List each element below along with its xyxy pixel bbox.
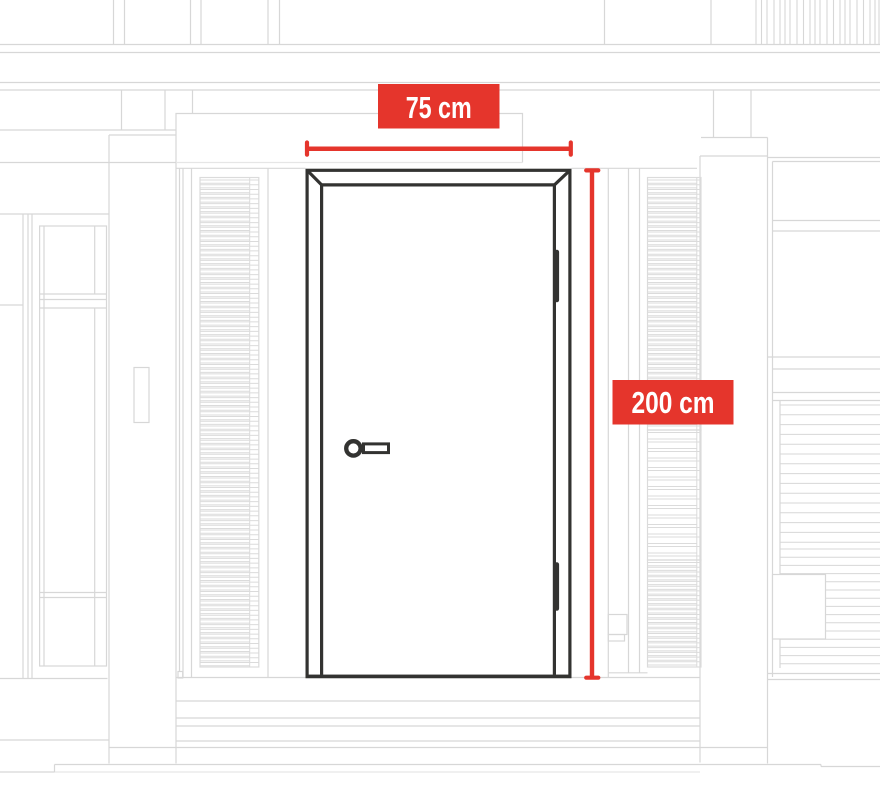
svg-text:200 cm: 200 cm: [632, 386, 715, 420]
svg-text:75 cm: 75 cm: [406, 91, 472, 125]
